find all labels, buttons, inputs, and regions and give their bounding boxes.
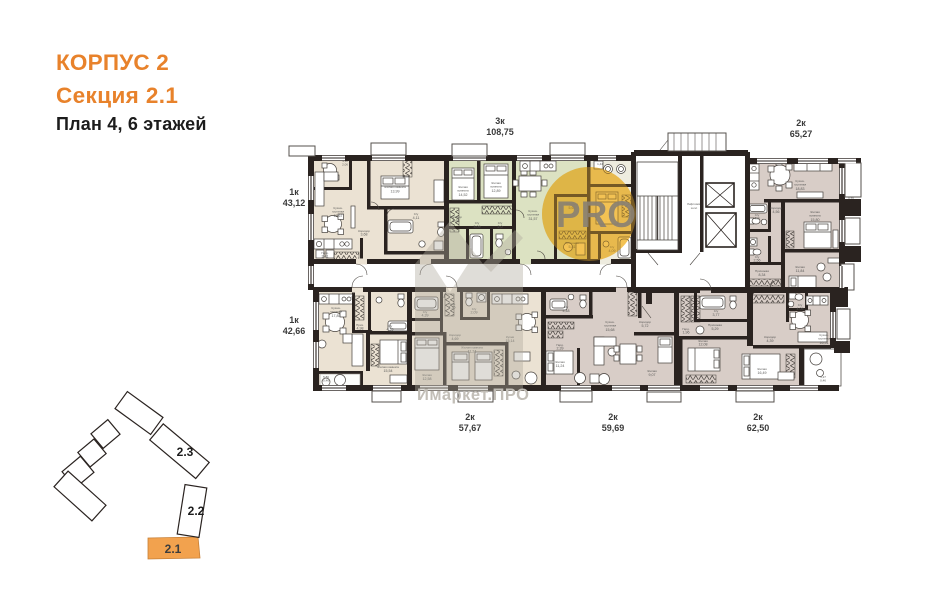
- svg-text:гостиная: гостиная: [604, 323, 617, 327]
- svg-text:КОРПУС 2: КОРПУС 2: [56, 50, 169, 75]
- svg-text:57,67: 57,67: [459, 423, 482, 433]
- svg-text:15,68: 15,68: [606, 328, 615, 332]
- svg-text:108,75: 108,75: [486, 127, 514, 137]
- svg-text:1к: 1к: [289, 187, 299, 197]
- svg-text:16,49: 16,49: [758, 371, 767, 375]
- svg-text:8,34: 8,34: [759, 273, 766, 277]
- svg-text:16,51: 16,51: [820, 341, 829, 345]
- svg-text:31,57: 31,57: [529, 217, 538, 221]
- svg-text:4,48: 4,48: [563, 309, 570, 313]
- svg-text:Имаркет.ПРО: Имаркет.ПРО: [417, 386, 530, 404]
- svg-text:5,72: 5,72: [642, 324, 649, 328]
- svg-text:5,29: 5,29: [712, 327, 719, 331]
- svg-text:65,27: 65,27: [790, 129, 813, 139]
- svg-text:42,66: 42,66: [283, 326, 306, 336]
- svg-text:3,77: 3,77: [713, 313, 720, 317]
- svg-text:гостиная: гостиная: [332, 209, 345, 213]
- svg-text:холл: холл: [691, 206, 698, 210]
- svg-text:комната: комната: [457, 188, 469, 192]
- svg-text:гостиная: гостиная: [818, 336, 831, 340]
- svg-text:9,07: 9,07: [649, 373, 656, 377]
- svg-text:12,08: 12,08: [699, 343, 708, 347]
- svg-text:2к: 2к: [608, 412, 618, 422]
- svg-text:4,05: 4,05: [797, 307, 804, 311]
- svg-text:Жилая комната: Жилая комната: [384, 185, 406, 189]
- svg-text:11,24: 11,24: [556, 364, 565, 368]
- svg-text:2к: 2к: [796, 118, 806, 128]
- svg-text:18,83: 18,83: [796, 187, 805, 191]
- svg-text:11,84: 11,84: [796, 269, 805, 273]
- svg-text:4,98: 4,98: [357, 327, 364, 331]
- svg-text:15,67: 15,67: [334, 214, 343, 218]
- svg-text:1,44: 1,44: [597, 162, 603, 166]
- svg-text:1,96: 1,96: [683, 331, 690, 335]
- svg-text:4,11: 4,11: [413, 216, 420, 220]
- svg-text:2,39: 2,39: [557, 347, 564, 351]
- svg-text:4,39: 4,39: [387, 328, 394, 332]
- svg-text:гостиная: гостиная: [330, 309, 343, 313]
- svg-text:12,89: 12,89: [492, 189, 501, 193]
- svg-text:15,54: 15,54: [384, 369, 393, 373]
- svg-text:2,56: 2,56: [754, 259, 761, 263]
- svg-text:17,85: 17,85: [332, 314, 341, 318]
- svg-text:43,12: 43,12: [283, 198, 306, 208]
- svg-text:гостиная: гостиная: [527, 212, 540, 216]
- svg-text:15,80: 15,80: [811, 218, 820, 222]
- svg-text:5,65: 5,65: [453, 219, 460, 223]
- svg-text:2.2: 2.2: [188, 504, 205, 518]
- svg-text:2к: 2к: [465, 412, 475, 422]
- svg-text:План 4, 6 этажей: План 4, 6 этажей: [56, 114, 207, 134]
- svg-text:3,41: 3,41: [322, 255, 329, 259]
- svg-text:2.3: 2.3: [177, 445, 194, 459]
- svg-text:62,50: 62,50: [747, 423, 770, 433]
- svg-text:4,56: 4,56: [773, 210, 780, 214]
- svg-text:1к: 1к: [289, 315, 299, 325]
- svg-text:59,69: 59,69: [602, 423, 625, 433]
- svg-text:2.1: 2.1: [165, 542, 182, 556]
- svg-text:13,99: 13,99: [391, 189, 400, 193]
- svg-text:комната: комната: [809, 213, 821, 217]
- svg-text:3к: 3к: [495, 116, 505, 126]
- svg-text:0,46: 0,46: [820, 379, 826, 383]
- svg-text:14,52: 14,52: [459, 193, 468, 197]
- svg-text:3,09: 3,09: [474, 225, 481, 229]
- svg-text:гостиная: гостиная: [794, 182, 807, 186]
- svg-text:Секция 2.1: Секция 2.1: [56, 83, 178, 108]
- svg-text:комната: комната: [490, 184, 502, 188]
- svg-text:2к: 2к: [753, 412, 763, 422]
- svg-text:0,46: 0,46: [323, 379, 329, 383]
- svg-text:PRO: PRO: [556, 194, 636, 235]
- svg-text:4,39: 4,39: [767, 339, 774, 343]
- svg-text:3,68: 3,68: [361, 233, 368, 237]
- svg-text:4,0: 4,0: [755, 217, 760, 221]
- svg-text:2,0: 2,0: [498, 225, 503, 229]
- svg-text:2,06: 2,06: [342, 163, 348, 167]
